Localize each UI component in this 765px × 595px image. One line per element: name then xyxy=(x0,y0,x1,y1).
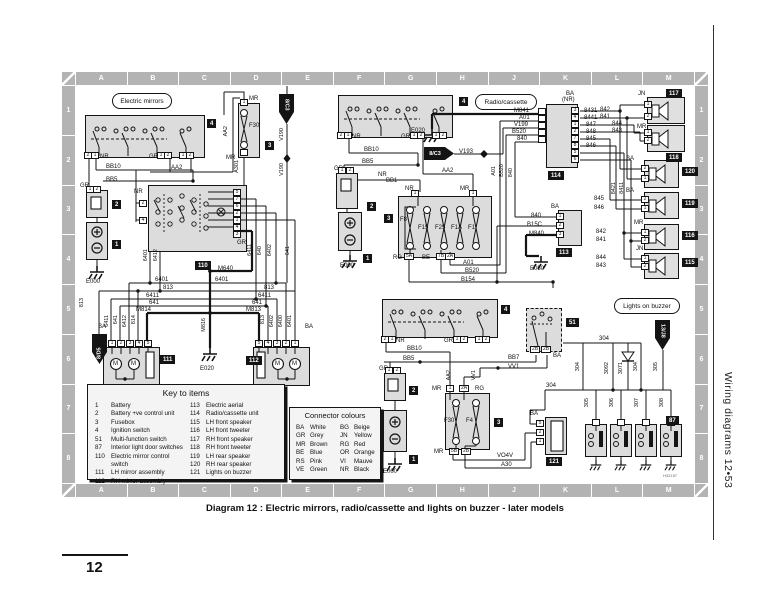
fusebox-radio xyxy=(398,196,492,258)
list-item: BEBlueOROrange xyxy=(296,449,380,457)
grid-cell: 4 xyxy=(695,235,708,284)
grid-cell: 6 xyxy=(695,335,708,384)
grid-cell: 8 xyxy=(695,434,708,483)
connector-box-title: Connector colours xyxy=(290,411,380,420)
control-unit-buzzer xyxy=(384,373,406,401)
list-item: RSPinkVIMauve xyxy=(296,458,380,466)
manual-page: ABCDEFGHJKLM ABCDEFGHJKLM 12345678 12345… xyxy=(0,0,765,595)
connector-colours-box: Connector colours BAWhiteBGBeigeGRGreyJN… xyxy=(289,407,381,480)
list-item: 2Battery +ve control unit xyxy=(95,410,187,418)
grid-cell: 5 xyxy=(695,285,708,334)
grid-cell: H xyxy=(437,484,488,497)
list-item: 116LH front tweeter xyxy=(190,427,282,435)
grid-cell: K xyxy=(540,484,591,497)
section-label-lights-on-buzzer: Lights on buzzer xyxy=(614,298,680,314)
electric-aerial-113 xyxy=(558,210,582,246)
grid-cell: 7 xyxy=(695,385,708,434)
ignition-switch-mirrors xyxy=(85,115,205,158)
list-item: 51Multi-function switch xyxy=(95,436,187,444)
list-item: GRGreyJNYellow xyxy=(296,432,380,440)
grid-cell: B xyxy=(128,72,179,85)
connector-colour-rows: BAWhiteBGBeigeGRGreyJNYellowMRBrownRGRed… xyxy=(296,424,380,475)
grid-cell: G xyxy=(385,72,436,85)
fuse-f30-strip xyxy=(238,103,260,158)
grid-cell: D xyxy=(231,484,282,497)
grid-letters-top: ABCDEFGHJKLM xyxy=(62,72,708,85)
grid-cell: J xyxy=(489,72,540,85)
rh-front-tweeter-118 xyxy=(647,125,685,152)
list-item: BAWhiteBGBeige xyxy=(296,424,380,432)
key-column-left: 1Battery2Battery +ve control unit3Fusebo… xyxy=(95,402,187,486)
list-item: 115LH front speaker xyxy=(190,419,282,427)
list-item: 87Interior light door switches xyxy=(95,444,187,452)
grid-cell: 5 xyxy=(62,285,75,334)
mirror-control-switch-110 xyxy=(148,185,247,252)
grid-cell: 3 xyxy=(62,186,75,235)
grid-corner xyxy=(695,484,708,497)
list-item: 112RH mirror assembly xyxy=(95,478,187,486)
grid-corner xyxy=(695,72,708,85)
battery-mirrors xyxy=(86,222,108,260)
page-number-rule xyxy=(62,554,128,556)
grid-cell: 3 xyxy=(695,186,708,235)
control-unit-mirrors xyxy=(86,190,108,218)
key-column-right: 113Electric aerial114Radio/cassette unit… xyxy=(190,402,282,478)
grid-cell: 4 xyxy=(62,235,75,284)
ignition-switch-radio xyxy=(338,95,453,138)
grid-corner xyxy=(62,484,75,497)
grid-cell: 1 xyxy=(695,86,708,135)
battery-buzzer xyxy=(383,410,407,452)
list-item: 120RH rear speaker xyxy=(190,461,282,469)
grid-cell: E xyxy=(282,484,333,497)
grid-cell: L xyxy=(592,72,643,85)
list-item: MRBrownRGRed xyxy=(296,441,380,449)
grid-cell: G xyxy=(385,484,436,497)
sidebar-title: Wiring diagrams 12•53 xyxy=(722,372,734,562)
grid-cell: 1 xyxy=(62,86,75,135)
rh-rear-speaker-120 xyxy=(644,160,679,188)
grid-numbers-left: 12345678 xyxy=(62,86,75,483)
key-to-items-box: Key to items 1Battery2Battery +ve contro… xyxy=(87,384,285,480)
list-item: 121Lights on buzzer xyxy=(190,469,282,477)
grid-cell: F xyxy=(334,484,385,497)
grid-cell: C xyxy=(179,72,230,85)
grid-cell: H xyxy=(437,72,488,85)
key-box-title: Key to items xyxy=(88,388,284,398)
grid-cell: A xyxy=(76,72,127,85)
lights-on-buzzer-121 xyxy=(545,417,567,455)
grid-cell: D xyxy=(231,72,282,85)
list-item: 111LH mirror assembly xyxy=(95,469,187,477)
grid-cell: M xyxy=(643,72,694,85)
list-item: 119LH rear speaker xyxy=(190,453,282,461)
door-switch-2 xyxy=(610,424,632,457)
grid-cell: 2 xyxy=(62,136,75,185)
fusebox-buzzer xyxy=(445,393,490,450)
list-item: 3Fusebox xyxy=(95,419,187,427)
grid-cell: J xyxy=(489,484,540,497)
list-item: 117RH front speaker xyxy=(190,436,282,444)
grid-cell: K xyxy=(540,72,591,85)
control-unit-radio xyxy=(336,173,358,209)
grid-cell: 2 xyxy=(695,136,708,185)
list-item: VEGreenNRBlack xyxy=(296,466,380,474)
lh-mirror-assembly-111 xyxy=(103,347,160,386)
page-number: 12 xyxy=(86,559,103,576)
grid-cell: E xyxy=(282,72,333,85)
grid-cell: 6 xyxy=(62,335,75,384)
grid-cell: M xyxy=(643,484,694,497)
list-item: 110Electric mirror control switch xyxy=(95,453,187,470)
grid-cell: L xyxy=(592,484,643,497)
ignition-switch-buzzer xyxy=(382,299,498,338)
battery-radio xyxy=(338,212,362,251)
section-label-radio-cassette: Radio/cassette xyxy=(475,94,537,110)
list-item: 1Battery xyxy=(95,402,187,410)
door-switch-3 xyxy=(635,424,657,457)
door-switch-1 xyxy=(585,424,607,457)
grid-cell: F xyxy=(334,72,385,85)
rh-front-speaker-117 xyxy=(647,97,685,124)
diagram-caption: Diagram 12 : Electric mirrors, radio/cas… xyxy=(62,503,708,514)
section-label-electric-mirrors: Electric mirrors xyxy=(112,93,172,109)
list-item: 4Ignition switch xyxy=(95,427,187,435)
lh-rear-speaker-119 xyxy=(644,192,679,219)
multi-function-switch-51 xyxy=(526,308,562,352)
door-switch-4 xyxy=(660,424,682,457)
grid-cell: 8 xyxy=(62,434,75,483)
list-item: 118RH front tweeter xyxy=(190,444,282,452)
grid-cell: 7 xyxy=(62,385,75,434)
lh-front-tweeter-116 xyxy=(644,224,679,250)
list-item: 114Radio/cassette unit xyxy=(190,410,282,418)
lh-front-speaker-115 xyxy=(644,253,679,279)
grid-numbers-right: 12345678 xyxy=(695,86,708,483)
sidebar-divider xyxy=(713,25,714,540)
radio-cassette-unit-114 xyxy=(546,104,578,168)
list-item: 113Electric aerial xyxy=(190,402,282,410)
rh-mirror-assembly-112 xyxy=(253,347,310,386)
grid-corner xyxy=(62,72,75,85)
